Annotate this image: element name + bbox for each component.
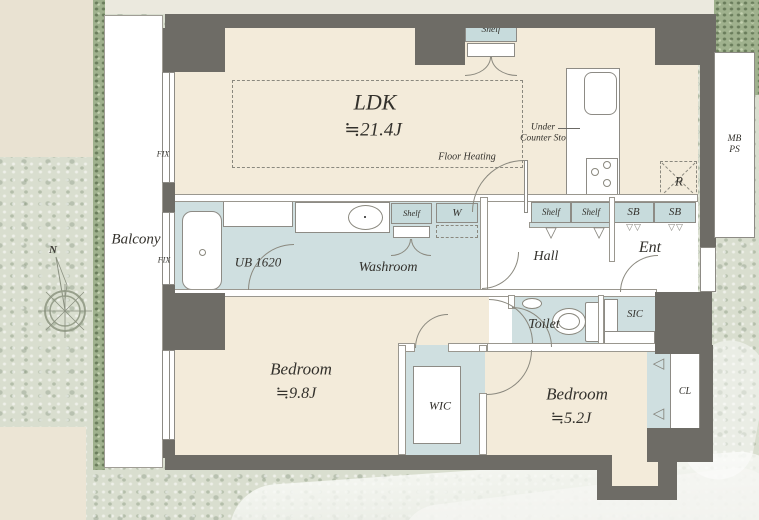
- shoe-box-2: SB: [654, 202, 696, 223]
- washroom-shelf-base: [393, 226, 430, 238]
- hall-shelf-cabinet-1: Shelf: [531, 202, 571, 223]
- compass-north-label: N: [48, 244, 58, 256]
- bathroom-label: UB 1620: [233, 256, 283, 271]
- folding-door-icon: ▽: [538, 226, 564, 241]
- folding-door-icon: ▽▽: [660, 223, 692, 232]
- door-leaf-ldk: [524, 160, 528, 213]
- shoe-box-label-2: SB: [669, 206, 681, 218]
- entrance-door-opening: [700, 247, 716, 292]
- background-beige-bottom-left: [0, 427, 86, 520]
- washroom-shelf-label: Shelf: [403, 209, 420, 219]
- stove-burner: [603, 179, 611, 187]
- fix-window-label-top: FIX: [157, 151, 169, 160]
- ldk-size-label: ≒21.4J: [344, 119, 402, 140]
- bath-counter: [223, 199, 293, 227]
- wic-label: WIC: [429, 399, 451, 412]
- bedroom-second-name-label: Bedroom: [546, 384, 608, 403]
- background-beige-top-left: [0, 0, 93, 157]
- wall-block-southeast: [647, 428, 713, 462]
- closet-box: CL: [670, 352, 700, 432]
- hall-label: Hall: [534, 249, 559, 265]
- entrance-label: Ent: [639, 239, 661, 257]
- background-strip-top: [105, 0, 716, 14]
- toilet-label: Toilet: [528, 317, 559, 333]
- bedroom-main-size-label: ≒9.8J: [276, 385, 317, 403]
- window-bedroom-main: [162, 350, 175, 440]
- floorplan-canvas: N Shelf Shelf: [0, 0, 759, 520]
- under-counter-storage-label: Under Counter Sto: [519, 122, 567, 143]
- washer-space-dashed: [436, 225, 478, 238]
- partition-ldk-south: [165, 194, 698, 202]
- washroom-shelf-cabinet: Shelf: [391, 203, 432, 224]
- floor-heating-label: Floor Heating: [438, 151, 496, 162]
- ldk-shelf-base: [467, 43, 515, 57]
- window-fix-lower: [162, 212, 175, 285]
- sic-label: SIC: [627, 309, 643, 321]
- closet-folding-door-icon: ◁: [648, 407, 669, 422]
- partition-toilet-sic: [598, 295, 604, 348]
- stove-burner: [591, 168, 599, 176]
- partition-hall-entrance: [609, 197, 615, 262]
- hall-shelf-label-1: Shelf: [542, 207, 560, 217]
- partition-mid-horizontal: [165, 289, 657, 297]
- meter-pipe-space-box: MB PS: [714, 52, 755, 238]
- window-fix-upper: [162, 72, 175, 183]
- meter-pipe-space-label: MB PS: [724, 134, 746, 155]
- folding-door-icon: ▽▽: [618, 223, 650, 232]
- partition-wic-east-a: [479, 345, 487, 352]
- hall-shelf-cabinet-2: Shelf: [571, 202, 611, 223]
- refrigerator-label: R: [675, 175, 683, 190]
- toilet-seat: [558, 313, 580, 330]
- kitchen-stove: [586, 158, 618, 195]
- shoe-box-1: SB: [613, 202, 654, 223]
- washer-label: W: [452, 207, 461, 219]
- wall-south: [165, 455, 612, 470]
- fix-window-label-bottom: FIX: [158, 257, 170, 266]
- washroom-label: Washroom: [359, 260, 418, 276]
- vanity-sink-drain: [364, 216, 366, 218]
- hall-shelf-label-2: Shelf: [582, 207, 600, 217]
- bedroom-second-size-label: ≒5.2J: [551, 410, 592, 428]
- ldk-name-label: LDK: [354, 91, 397, 116]
- compass-rose: N: [25, 238, 105, 343]
- balcony-label: Balcony: [111, 232, 160, 249]
- bathtub-drain: [199, 249, 206, 256]
- toilet-hand-sink: [522, 298, 542, 309]
- stove-burner: [603, 161, 611, 169]
- kitchen-sink: [584, 72, 617, 115]
- wall-east-closet: [700, 345, 713, 433]
- closet-label: CL: [679, 386, 691, 397]
- shoe-box-label-1: SB: [627, 206, 639, 218]
- closet-folding-door-icon: ◁: [648, 357, 669, 372]
- bedroom-main-name-label: Bedroom: [270, 359, 332, 378]
- wall-block-north-center: [415, 14, 465, 65]
- partition-wic-west: [398, 345, 406, 455]
- partition-wic-east-b: [479, 393, 487, 455]
